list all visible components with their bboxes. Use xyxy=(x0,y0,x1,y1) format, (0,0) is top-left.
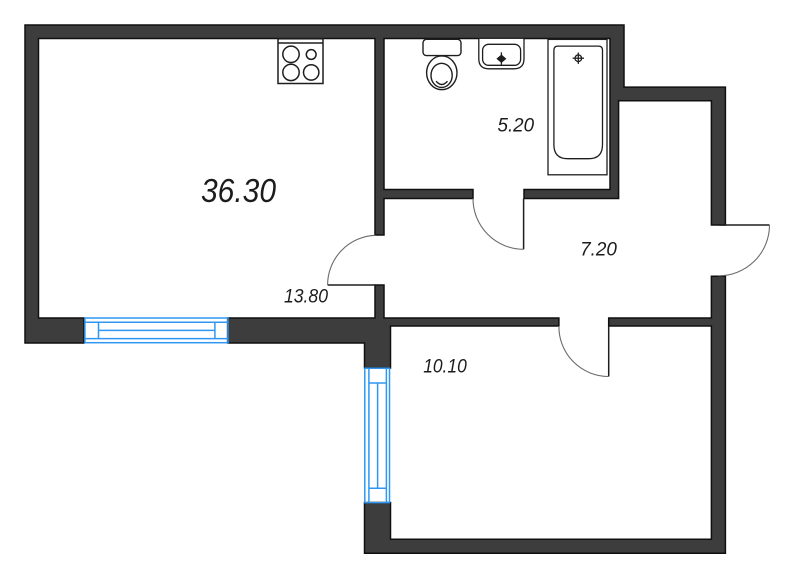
svg-text:36.30: 36.30 xyxy=(201,172,277,209)
svg-text:5.20: 5.20 xyxy=(498,116,535,137)
svg-text:7.20: 7.20 xyxy=(580,240,617,261)
svg-text:13.80: 13.80 xyxy=(284,287,328,308)
svg-text:10.10: 10.10 xyxy=(423,357,467,378)
